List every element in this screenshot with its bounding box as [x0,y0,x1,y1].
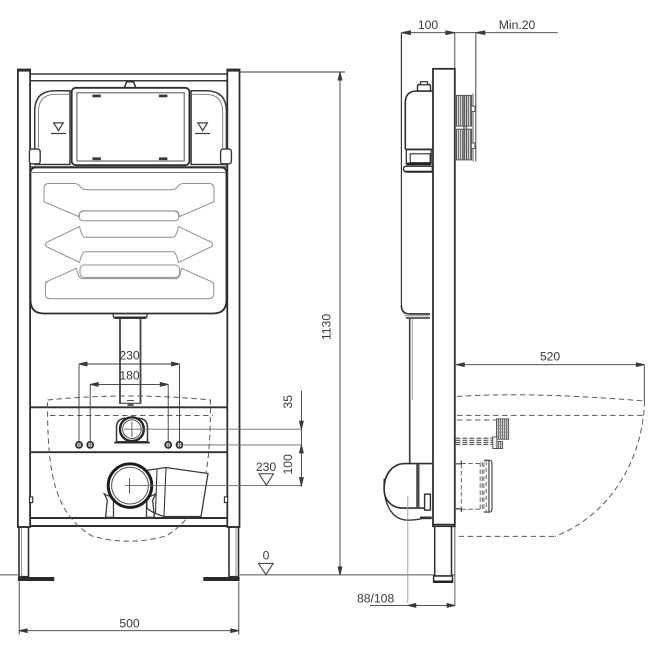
svg-text:1130: 1130 [320,314,334,340]
svg-text:100: 100 [418,18,439,32]
svg-text:520: 520 [540,349,561,363]
svg-text:Min.20: Min.20 [499,18,536,32]
svg-text:100: 100 [281,454,295,475]
svg-text:35: 35 [281,395,295,409]
svg-text:180: 180 [119,369,140,383]
svg-text:230: 230 [119,349,140,363]
svg-text:0: 0 [263,549,270,563]
svg-text:88/108: 88/108 [357,592,394,606]
svg-text:230: 230 [256,460,277,474]
svg-text:500: 500 [119,616,140,630]
